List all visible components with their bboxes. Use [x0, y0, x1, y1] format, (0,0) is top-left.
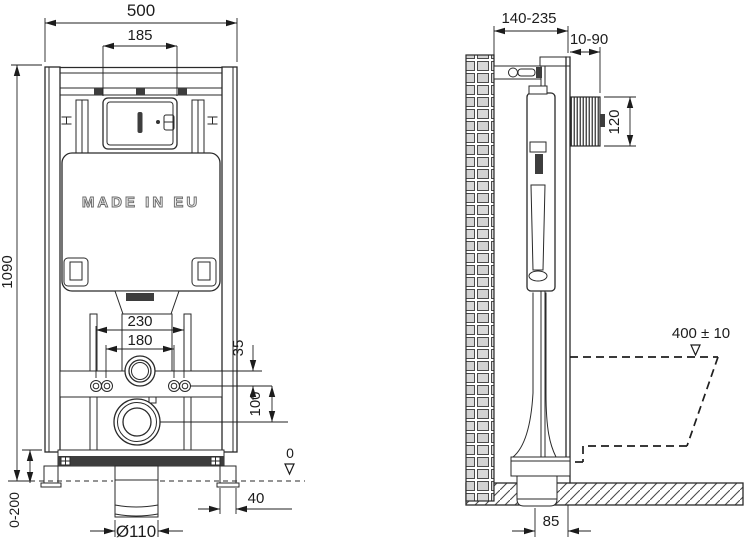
dimension-overall-width-label: 500	[127, 1, 155, 20]
dimension-flush-pipe-offset-label: 35	[230, 340, 247, 357]
dimension-plate-height-label: 120	[606, 109, 623, 134]
top-rail	[60, 68, 222, 96]
flush-plate-box-side	[571, 97, 605, 146]
floor-slab	[466, 483, 743, 505]
dimension-install-depth: 140-235	[494, 10, 568, 62]
front-view: MADE IN EU	[0, 1, 305, 541]
flush-plate-panel	[103, 98, 177, 149]
dimension-plate-height: 120	[604, 97, 636, 146]
dimension-bowl-height: 400 ± 10	[672, 325, 730, 355]
drain-pipe	[115, 466, 158, 517]
fixing-rail	[60, 356, 222, 445]
dimension-install-depth-label: 140-235	[501, 10, 556, 27]
dimension-outlet-diameter-label: Ø110	[116, 522, 156, 541]
brick-wall	[466, 55, 494, 501]
dimension-bowl-height-label: 400 ± 10	[672, 325, 730, 342]
cistern-side	[527, 86, 555, 291]
dimension-bolt-spacing-wide-label: 230	[127, 313, 152, 330]
dimension-plate-depth: 10-90	[570, 31, 608, 93]
side-view: 140-235 10-90 120 400 ± 10	[466, 10, 743, 537]
floor-level-marker: 0	[285, 445, 294, 474]
floor-level-label: 0	[286, 445, 294, 461]
dimension-bolt-spacing-narrow-label: 180	[127, 332, 152, 349]
dimension-outlet-diameter: Ø110	[90, 520, 183, 541]
dimension-leg-adjustment-label: 0-200	[6, 492, 22, 528]
dimension-overall-height-label: 1090	[0, 255, 16, 288]
dimension-plate-depth-label: 10-90	[570, 31, 608, 48]
dimension-overall-height: 1090	[0, 65, 42, 481]
level-marker-icon	[691, 345, 700, 355]
wall-bracket	[494, 66, 542, 79]
dimension-outlet-distance-label: 85	[543, 513, 560, 530]
toilet-bowl-outline	[570, 357, 718, 462]
made-in-eu-text: MADE IN EU	[82, 194, 200, 211]
drain-outlet	[114, 397, 160, 445]
cistern: MADE IN EU	[62, 153, 220, 314]
dimension-plate-width-label: 185	[127, 27, 152, 44]
technical-drawing: MADE IN EU	[0, 0, 750, 543]
dimension-leg-adjustment: 0-200	[6, 450, 42, 528]
level-marker-icon	[285, 464, 294, 474]
dimension-foot-width: 40	[198, 488, 292, 514]
dimension-foot-width-label: 40	[248, 490, 265, 507]
dimension-outlet-distance: 85	[512, 505, 591, 537]
dimension-plate-width: 185	[103, 27, 177, 96]
dimension-outlet-offset-label: 100	[247, 391, 264, 416]
